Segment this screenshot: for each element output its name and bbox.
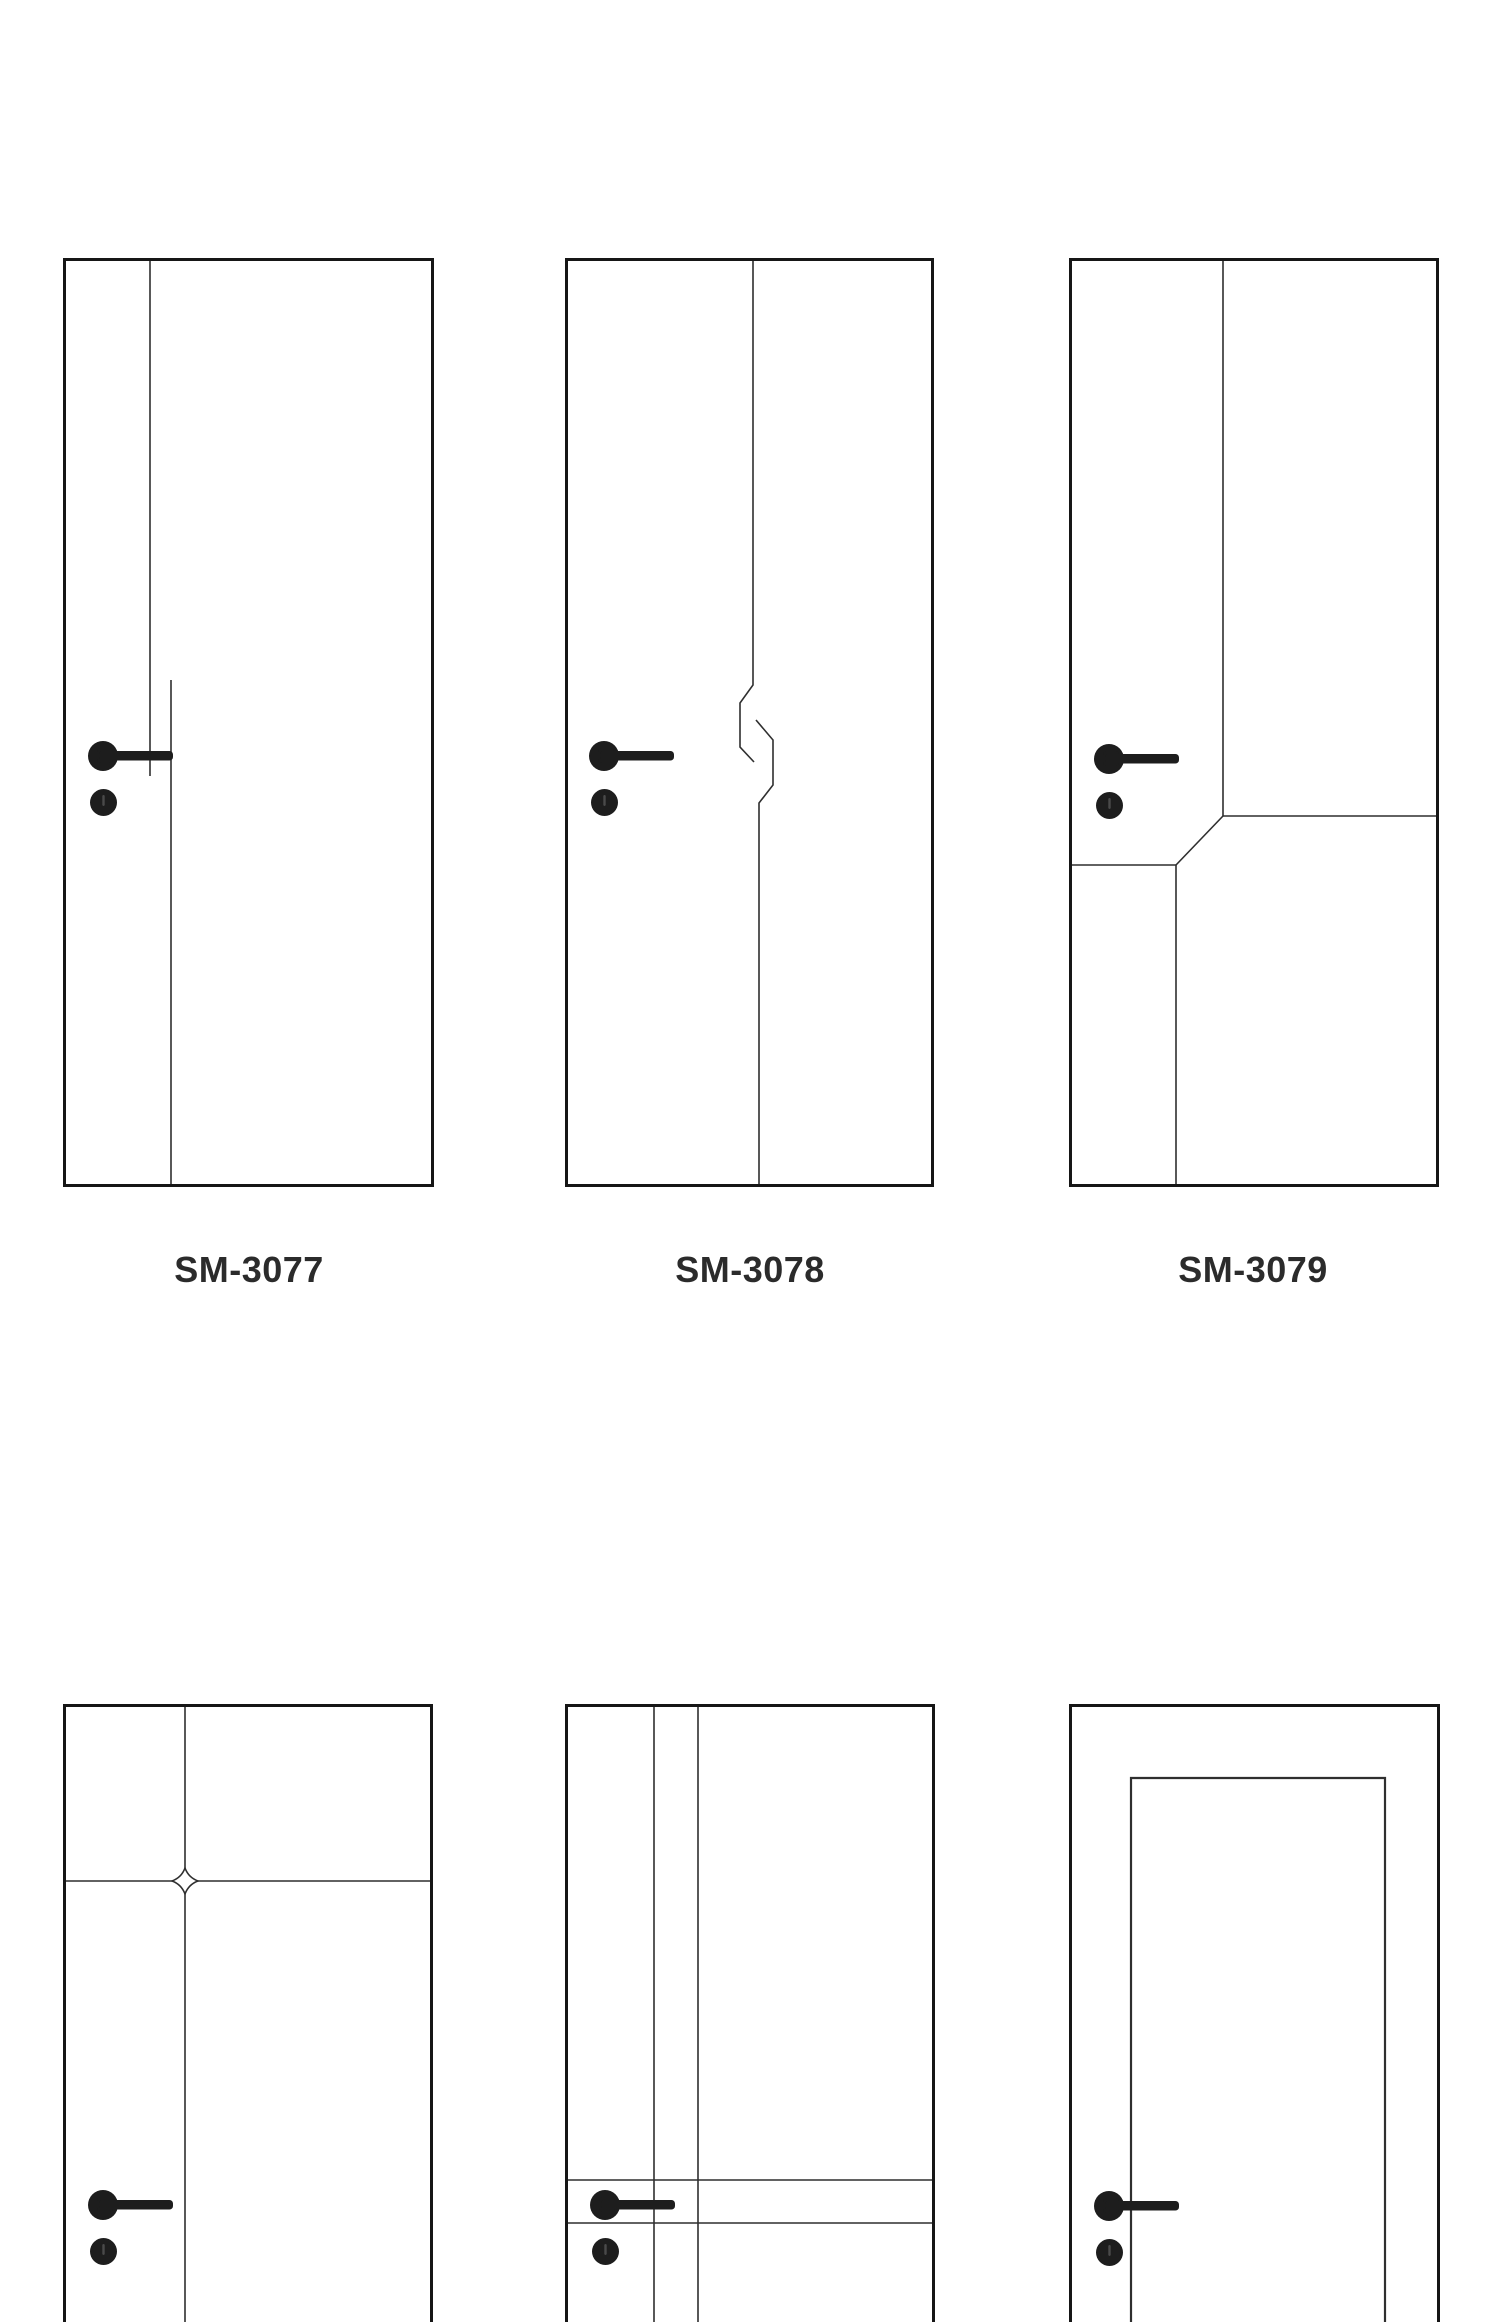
door-sm-3079 (1069, 258, 1439, 1187)
door-cross-sparkle (63, 1704, 433, 2322)
door-inset-frame (1069, 1704, 1440, 2322)
door-sm-3077 (63, 258, 434, 1187)
groove-line-broken-top (740, 261, 754, 762)
catalog-sheet: SM-3077 SM-3078 SM-3079 (0, 0, 1500, 2322)
door-handle-icon (88, 2190, 173, 2265)
door-handle-icon (1094, 744, 1179, 819)
sparkle-icon (172, 1868, 198, 1894)
groove-line-broken-bottom (756, 720, 773, 1184)
door-handle-icon (1094, 2191, 1179, 2266)
door-double-grooves (565, 1704, 935, 2322)
panel-frame-line (1131, 1778, 1385, 2322)
groove-line-chamfer (1176, 816, 1223, 865)
door-handle-icon (590, 2190, 675, 2265)
model-label-sm-3077: SM-3077 (174, 1248, 324, 1292)
door-handle-icon (589, 741, 674, 816)
door-handle-icon (88, 741, 173, 816)
door-sm-3078 (565, 258, 934, 1187)
model-label-sm-3079: SM-3079 (1178, 1248, 1328, 1292)
model-label-sm-3078: SM-3078 (675, 1248, 825, 1292)
